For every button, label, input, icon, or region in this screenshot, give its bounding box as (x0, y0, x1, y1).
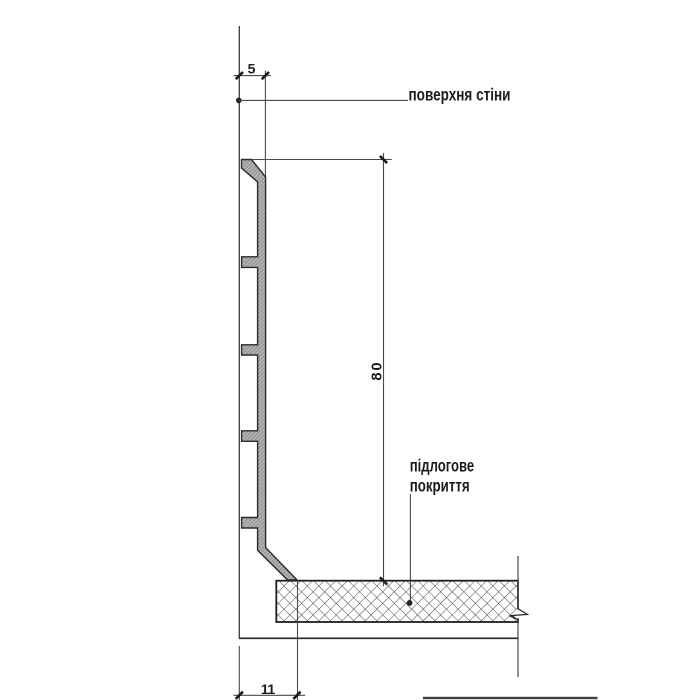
svg-text:11: 11 (261, 681, 276, 697)
svg-text:80: 80 (369, 361, 385, 381)
svg-text:покриття: покриття (410, 476, 470, 496)
svg-text:поверхня стіни: поверхня стіни (409, 85, 511, 105)
svg-text:5: 5 (248, 61, 256, 77)
svg-text:підлогове: підлогове (410, 456, 475, 476)
